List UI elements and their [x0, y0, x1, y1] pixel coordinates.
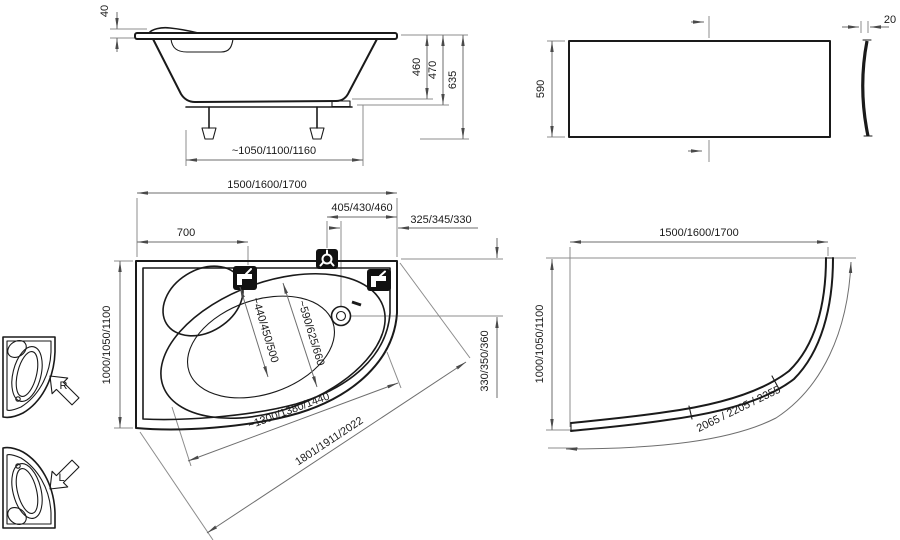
variant-right-rim [7, 341, 51, 410]
variant-left-outline [3, 448, 55, 528]
rim-profile [135, 33, 397, 39]
foot-left-base [202, 128, 216, 139]
dim-panel-length: 1500/1600/1700 [659, 227, 739, 239]
variant-left-rim [7, 455, 51, 524]
tub-shell-profile [153, 39, 377, 102]
variant-left-label: L [58, 472, 64, 484]
dim-drain-offset: 325/345/330 [410, 214, 471, 226]
dim-drain-from-edge: 330/350/360 [479, 330, 491, 391]
variant-right-outline [3, 337, 55, 417]
dim-basin-width-wide: ~590/625/660 [295, 299, 326, 367]
dim-basin-length-line [188, 383, 398, 461]
variant-left: L [3, 448, 79, 528]
dim-tap-offset: 700 [177, 227, 195, 239]
panel-edge-profile [863, 41, 868, 136]
ext-line [387, 352, 401, 388]
panel-plan-view: 1500/1600/1700 1000/1050/1100 2065 / 220… [534, 227, 856, 449]
dim-mixer-offset: 405/430/460 [331, 202, 392, 214]
ext-line-diagonal-right [400, 263, 470, 358]
dim-depth: 460 [411, 58, 423, 76]
drawing-canvas: 40 460 470 635 ~1050/1100/1160 590 [0, 0, 900, 540]
dim-panel-width: 1000/1050/1100 [534, 305, 546, 384]
plan-view: 1500/1600/1700 405/430/460 325/345/330 7… [101, 179, 503, 540]
dim-lip-height: 40 [99, 5, 111, 17]
drain-icon-inner [337, 312, 346, 321]
dim-length: 1500/1600/1700 [227, 179, 307, 191]
side-view: 40 460 470 635 ~1050/1100/1160 [99, 5, 469, 166]
ext-line [172, 407, 191, 466]
ext-line-diagonal-left [140, 432, 213, 540]
dim-total-height: 635 [447, 71, 459, 89]
dim-diagonal: 1801/1911/2022 [293, 415, 365, 468]
dim-feet-span: ~1050/1100/1160 [232, 145, 316, 157]
panel-strip-inner [571, 258, 826, 423]
foot-right-base [310, 128, 324, 139]
dim-curve-length: 2065 / 2205 / 2355 [695, 384, 783, 435]
dim-width: 1000/1050/1100 [101, 306, 113, 385]
tap-icon-right [367, 269, 391, 291]
seat-contour [171, 39, 233, 52]
dim-panel-thickness: 20 [884, 14, 896, 26]
dim-panel-height: 590 [535, 80, 547, 98]
variant-right: R [3, 337, 79, 417]
tap-icon-left [233, 266, 257, 290]
front-panel-view: 590 20 [535, 14, 896, 162]
drain-icon [332, 307, 351, 326]
technical-drawing-sheet: 40 460 470 635 ~1050/1100/1160 590 [0, 0, 900, 540]
dim-frame-height: 470 [427, 61, 439, 79]
variant-right-label: R [60, 380, 68, 392]
mixer-icon [316, 249, 338, 269]
panel-face [569, 41, 830, 137]
overflow-mark [352, 302, 361, 305]
